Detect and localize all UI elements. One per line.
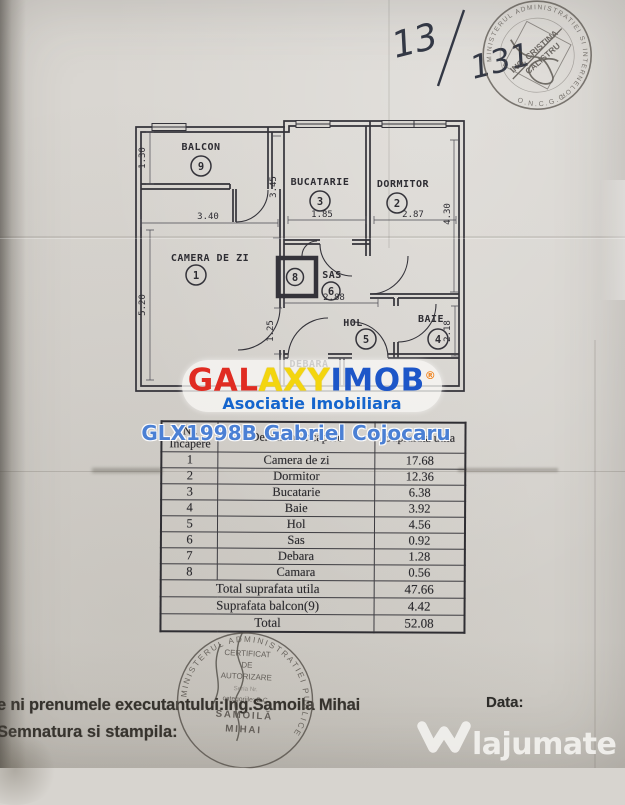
cert-line-mihai: MIHAI: [225, 723, 262, 736]
room-label-dormitor: DORMITOR: [377, 179, 430, 190]
cell-nr: 7: [161, 548, 218, 564]
cell-area: 3.92: [375, 501, 466, 517]
room-label-hol: HOL: [343, 318, 363, 329]
cell-area: 12.36: [375, 469, 466, 485]
galaxyimob-logo-wordmark: GALAXYIMOB®: [182, 361, 442, 395]
room-label-baie: BAIE: [418, 314, 444, 325]
cell-nr: 8: [161, 564, 218, 580]
cell-nr: 6: [161, 532, 218, 548]
agent-watermark: GLX1998B Gabriel Cojocaru: [128, 421, 464, 445]
room-areas-table: Nr. Incapere Denumire incapere Suprafata…: [159, 420, 466, 634]
cell-nr: 4: [161, 500, 218, 516]
cell-nr: 1: [161, 452, 218, 468]
dim-dormitor-h: 4.30: [443, 203, 453, 225]
cell-name: Camera de zi: [218, 452, 375, 469]
cell-nr: 2: [161, 468, 218, 484]
table-row: 8 Camara 0.56: [161, 564, 465, 582]
footer-area: 47.66: [374, 581, 465, 598]
cell-name: Hol: [218, 516, 375, 533]
room-label-sas: SAS: [322, 270, 342, 281]
cell-area: 1.28: [374, 549, 465, 565]
date-label: Data:: [486, 694, 524, 711]
room-num-bucatarie: 3: [317, 196, 323, 208]
table-row: 3 Bucatarie 6.38: [161, 484, 465, 502]
handwritten-13: 13: [388, 16, 442, 67]
table-row: 4 Baie 3.92: [161, 500, 465, 518]
cell-name: Dormitor: [218, 468, 375, 485]
dim-camera-h: 5.20: [138, 294, 148, 316]
lajumate-name: lajumate: [472, 727, 616, 762]
dim-bucatarie-w: 1.85: [311, 210, 333, 220]
dim-bucatarie-h: 3.45: [269, 176, 279, 198]
cell-name: Baie: [218, 500, 375, 517]
table-row: 2 Dormitor 12.36: [161, 468, 465, 486]
room-num-camara: 8: [292, 272, 298, 284]
table-row: 5 Hol 4.56: [161, 516, 465, 534]
cell-nr: 5: [161, 516, 218, 532]
table-row: 1 Camera de zi 17.68: [161, 452, 465, 470]
room-label-camera: CAMERA DE ZI: [171, 253, 249, 264]
logo-part-gal: GAL: [188, 362, 259, 398]
floorplan-windows: [152, 121, 446, 131]
cell-name: Bucatarie: [218, 484, 375, 501]
cell-area: 0.92: [374, 533, 465, 549]
logo-registered-mark: ®: [425, 369, 437, 382]
table-footer-row: Suprafata balcon(9) 4.42: [161, 597, 465, 616]
table-footer-row: Total suprafata utila 47.66: [161, 580, 465, 599]
cert-line-categorii: categoriile: B.C: [222, 695, 268, 704]
footer-area: 52.08: [374, 615, 465, 633]
cert-line-autorizare: AUTORIZARE: [220, 671, 272, 683]
dim-balcon-h: 1.30: [138, 147, 148, 169]
floorplan: BALCON CAMERA DE ZI BUCATARIE DORMITOR S…: [126, 110, 490, 398]
room-num-baie: 4: [435, 334, 441, 346]
room-num-hol: 5: [363, 334, 369, 346]
room-num-balcon: 9: [198, 161, 204, 173]
lajumate-w-icon: [422, 726, 466, 748]
logo-part-imob: IMOB: [330, 362, 424, 398]
footer-area: 4.42: [374, 598, 465, 615]
cell-nr: 3: [161, 484, 218, 500]
cell-area: 6.38: [375, 485, 466, 501]
room-label-bucatarie: BUCATARIE: [291, 177, 350, 188]
cell-area: 0.56: [374, 565, 465, 581]
dim-sas-w: 2.88: [323, 293, 345, 303]
cert-line-samoila: SAMOILĂ: [215, 709, 273, 723]
cell-name: Camara: [217, 564, 374, 581]
dim-hol-h: 1.25: [266, 320, 276, 342]
logo-part-axy: AXY: [258, 362, 330, 398]
dim-baie-h: 2.18: [443, 320, 453, 342]
cell-area: 17.68: [375, 453, 466, 469]
room-label-balcon: BALCON: [181, 142, 220, 153]
dim-camera-w: 3.40: [197, 212, 219, 222]
cell-name: Debara: [218, 548, 375, 565]
footer-label: Suprafata balcon(9): [161, 597, 375, 615]
cell-area: 4.56: [375, 517, 466, 533]
cell-name: Sas: [218, 532, 375, 549]
cert-line-de: DE: [241, 660, 253, 670]
svg-text:lajumate .ro: lajumate .ro: [472, 727, 625, 762]
galaxyimob-logo: GALAXYIMOB® Asociatie Imobiliara: [182, 360, 442, 412]
room-num-dormitor: 2: [394, 198, 400, 210]
room-num-camera: 1: [193, 270, 199, 282]
footer-label: Total suprafata utila: [161, 580, 375, 598]
certificate-stamp: MINISTERUL ADMINISTRATIEI PUBLICE CERTIF…: [146, 621, 347, 773]
table-row: 7 Debara 1.28: [161, 548, 465, 566]
cert-line-certificat: CERTIFICAT: [224, 648, 271, 659]
cert-line-seria: Seria Nr.: [233, 685, 258, 693]
dim-dormitor-w: 2.87: [402, 210, 424, 220]
lajumate-watermark: lajumate .ro: [412, 712, 625, 768]
table-row: 6 Sas 0.92: [161, 532, 465, 550]
